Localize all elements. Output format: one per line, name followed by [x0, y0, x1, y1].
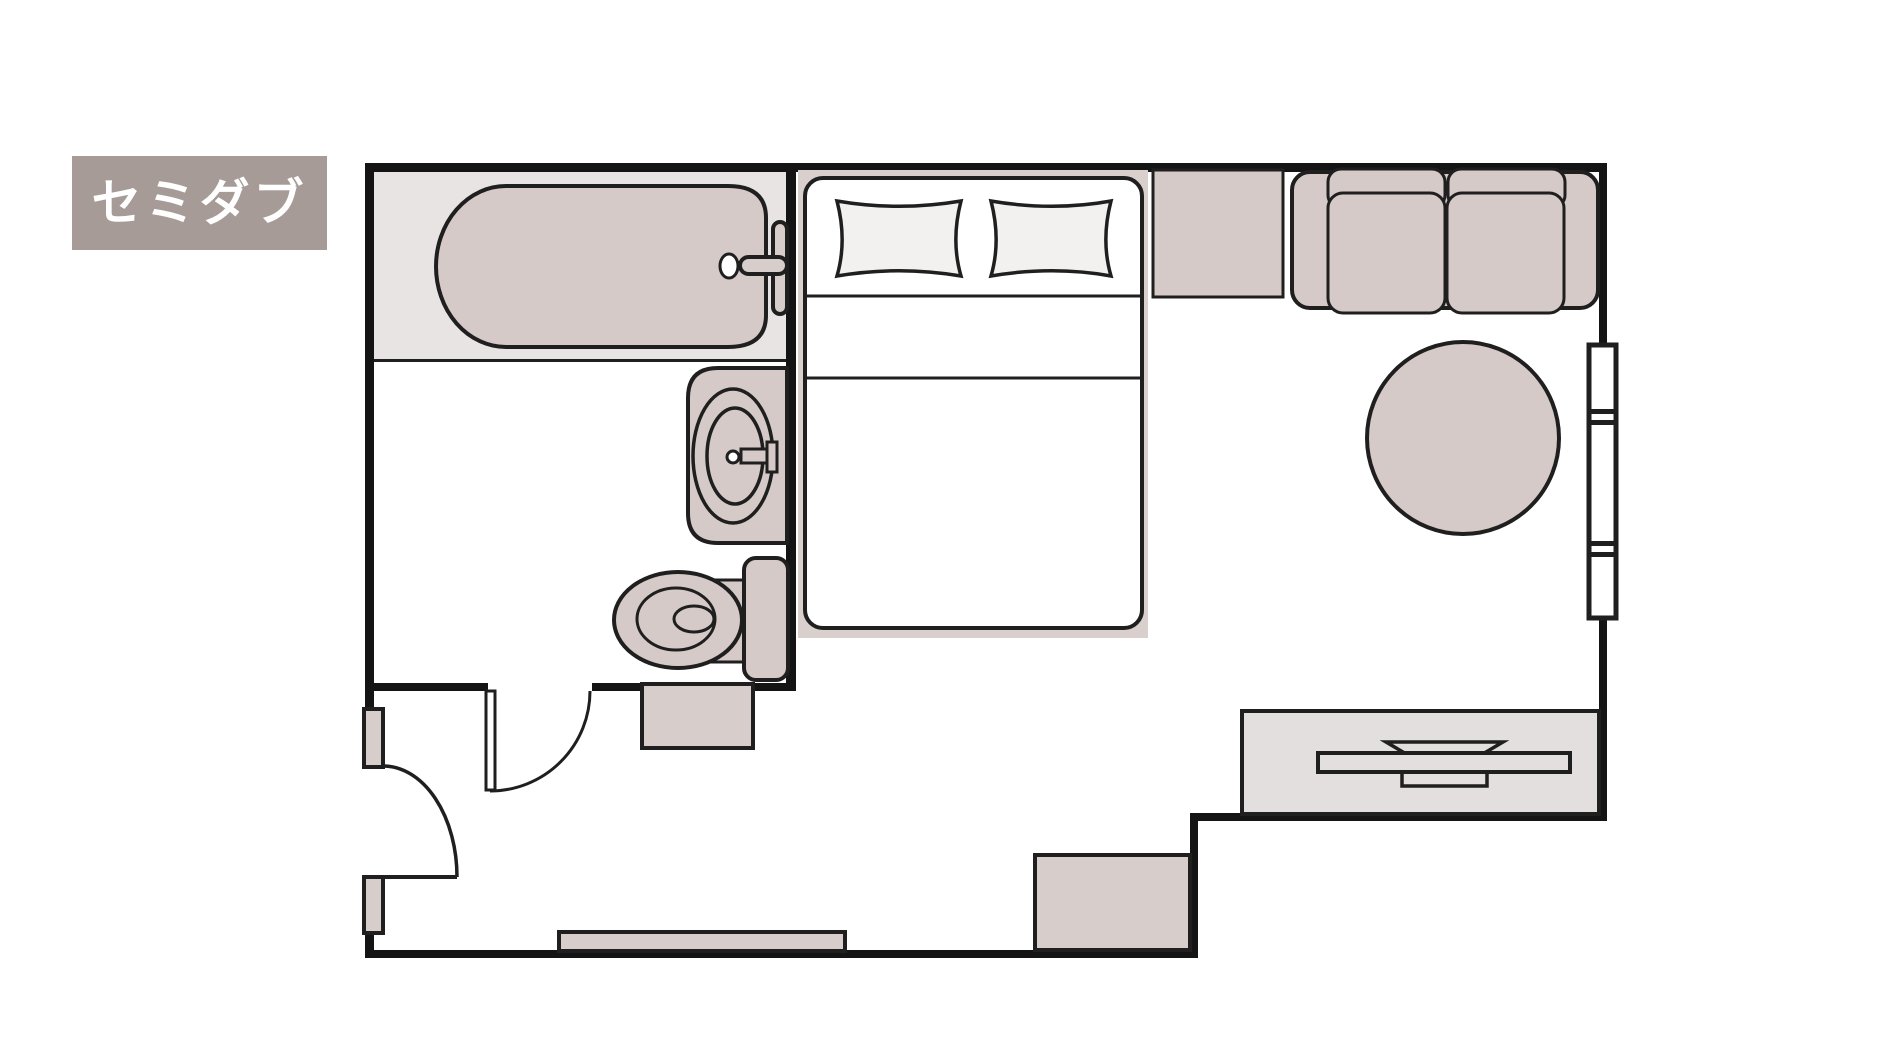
window-icon [1589, 345, 1616, 618]
sofa-icon [1292, 169, 1598, 313]
room-type-label: セミダブル [72, 156, 327, 250]
bathtub-icon [436, 186, 787, 347]
entrance-door-swing-arc [383, 766, 457, 877]
pillow-icon [991, 201, 1111, 276]
tv-shelf-bar [1318, 753, 1570, 772]
storage-bench-icon [1035, 855, 1190, 950]
sofa-seat-cushion [1328, 193, 1445, 313]
interior-door-icon [486, 691, 590, 791]
entrance-jamb-bottom [364, 877, 383, 933]
pillow-icon [837, 201, 961, 276]
round-table-icon [1367, 342, 1559, 534]
double-bed-icon [798, 170, 1148, 638]
sofa-seat-cushion [1447, 193, 1564, 313]
floor-plan-page: セミダブル [0, 0, 1890, 1063]
interior-door-panel [486, 691, 495, 790]
toilet-tank [744, 558, 788, 680]
hall-storage-icon [642, 684, 753, 748]
toilet-bowl [614, 572, 742, 668]
entrance-step-icon [559, 932, 845, 951]
toilet-icon [614, 558, 788, 680]
side-counter-icon [1153, 170, 1283, 297]
bath-faucet-icon [720, 254, 787, 278]
tv-board-icon [1242, 711, 1599, 814]
washbasin-icon [688, 368, 787, 543]
interior-door-swing-arc [490, 691, 590, 791]
entrance-door-icon [364, 709, 457, 933]
entrance-jamb-top [364, 709, 383, 767]
